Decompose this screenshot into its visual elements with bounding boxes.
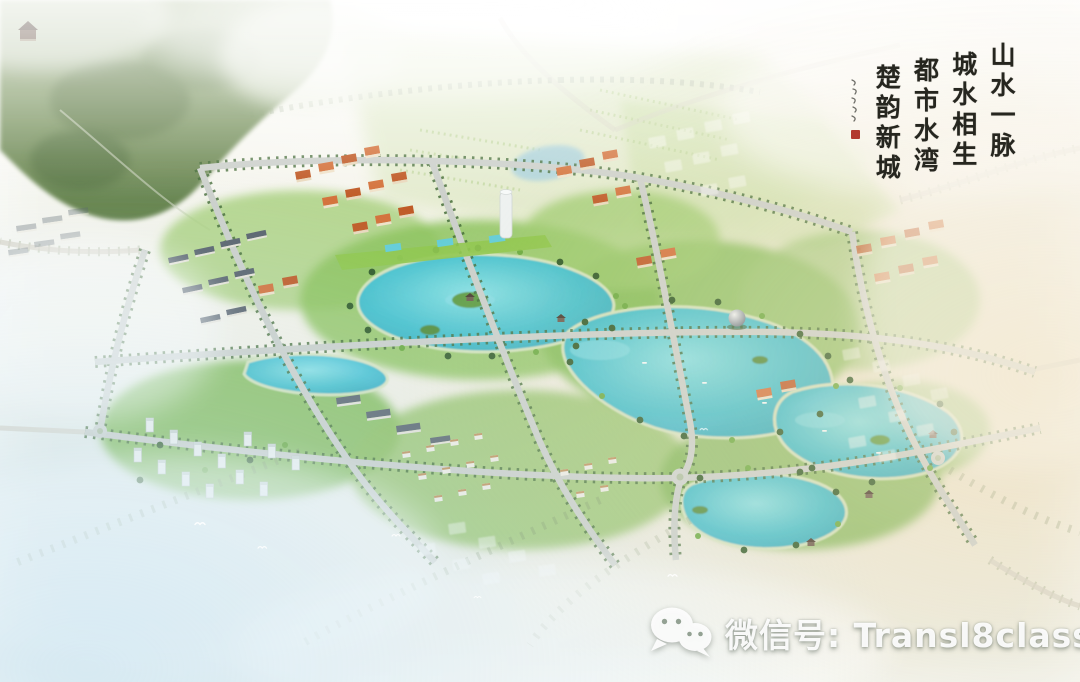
watermark-text: 微信号: Transl8classwaraid [725, 609, 1080, 657]
signature-strokes [849, 78, 861, 126]
calligraphy-column-3: 都市水湾 [911, 57, 937, 177]
masterplan-rendering: 山水一脉 城水相生 都市水湾 楚韵新城 [0, 0, 1080, 682]
wechat-watermark: 微信号: Transl8classwaraid [650, 606, 1080, 660]
calligraphy-column-2: 城水相生 [950, 51, 976, 171]
wechat-icon [650, 606, 712, 660]
artist-signature [849, 78, 861, 139]
calligraphy-inscription: 山水一脉 城水相生 都市水湾 楚韵新城 [849, 42, 1014, 184]
calligraphy-column-1: 山水一脉 [988, 42, 1014, 162]
calligraphy-column-4: 楚韵新城 [873, 64, 899, 184]
red-seal-stamp [851, 130, 860, 139]
